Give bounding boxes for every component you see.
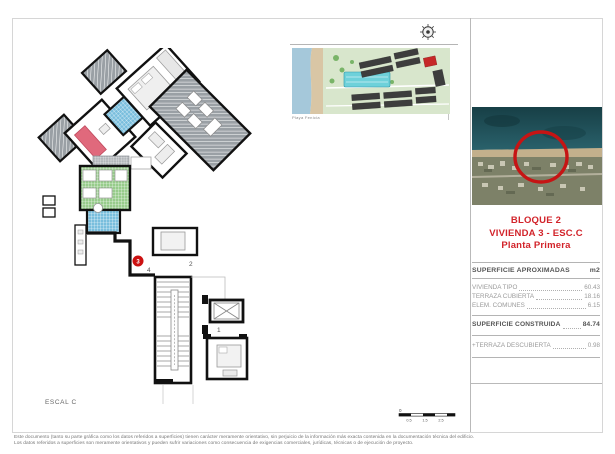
table-total-row: SUPERFICIE CONSTRUIDA 84.74 — [472, 321, 600, 330]
area-table-header: SUPERFICIE APROXIMADAS m2 — [472, 265, 600, 276]
disclaimer-line-2: Los datos referidos a superficies son me… — [14, 441, 602, 447]
unit-label-2: 2 — [189, 261, 193, 268]
scale-tick: 2.5 — [438, 419, 443, 423]
stairwell — [155, 277, 191, 383]
row-value: 6.15 — [588, 302, 600, 311]
unit-label-4: 4 — [147, 267, 151, 274]
site-plan-map — [292, 48, 450, 114]
title-block: BLOQUE 2 VIVIENDA 3 - ESC.C Planta Prime… — [471, 215, 601, 253]
disclaimer: Este documento (tanto su parte gráfica c… — [14, 435, 602, 447]
row-value: 60.43 — [584, 284, 600, 293]
panel-divider-horizontal — [471, 383, 602, 384]
aerial-photo — [472, 107, 602, 205]
staircase-label: ESCAL C — [45, 399, 77, 406]
scale-tick: 1.5 — [422, 419, 427, 423]
row-label: TERRAZA CUBIERTA — [472, 293, 534, 302]
compass-icon — [419, 23, 437, 41]
table-row: VIVIENDA TIPO 60.43 — [472, 284, 600, 293]
table-row: TERRAZA CUBIERTA 18.16 — [472, 293, 600, 302]
corridor-wall — [87, 233, 155, 275]
scale-tick: 0.5 — [406, 419, 411, 423]
extra-value: 0.98 — [588, 342, 600, 351]
row-label: ELEM. COMUNES — [472, 302, 525, 311]
unit-label-1: 1 — [217, 327, 221, 334]
elevator — [210, 300, 243, 322]
table-row: ELEM. COMUNES 6.15 — [472, 302, 600, 311]
floor-plan-drawing: 3 4 2 1 — [25, 48, 275, 408]
siteplan-top-rule — [290, 44, 458, 45]
area-table: SUPERFICIE APROXIMADAS m2 VIVIENDA TIPO … — [472, 260, 600, 360]
total-value: 84.74 — [583, 321, 600, 330]
room-small — [153, 228, 197, 255]
total-label: SUPERFICIE CONSTRUIDA — [472, 321, 561, 330]
sea-area — [292, 48, 312, 114]
site-plan-caption: Playa Fenicia — [292, 115, 320, 120]
room-1 — [207, 338, 247, 379]
title-planta: Planta Primera — [471, 240, 601, 253]
title-vivienda: VIVIENDA 3 - ESC.C — [471, 228, 601, 241]
table-extra-row: +TERRAZA DESCUBIERTA 0.98 — [472, 342, 600, 351]
green-patio — [80, 166, 130, 210]
row-value: 18.16 — [584, 293, 600, 302]
row-label: VIVIENDA TIPO — [472, 284, 517, 293]
title-bloque: BLOQUE 2 — [471, 215, 601, 228]
header-label: SUPERFICIE APROXIMADAS — [472, 265, 570, 276]
scale-zero: 0 — [399, 408, 402, 413]
header-unit: m2 — [590, 265, 600, 276]
extra-label: +TERRAZA DESCUBIERTA — [472, 342, 551, 351]
scale-bar: 0 0.5 1.5 2.5 — [397, 407, 461, 423]
